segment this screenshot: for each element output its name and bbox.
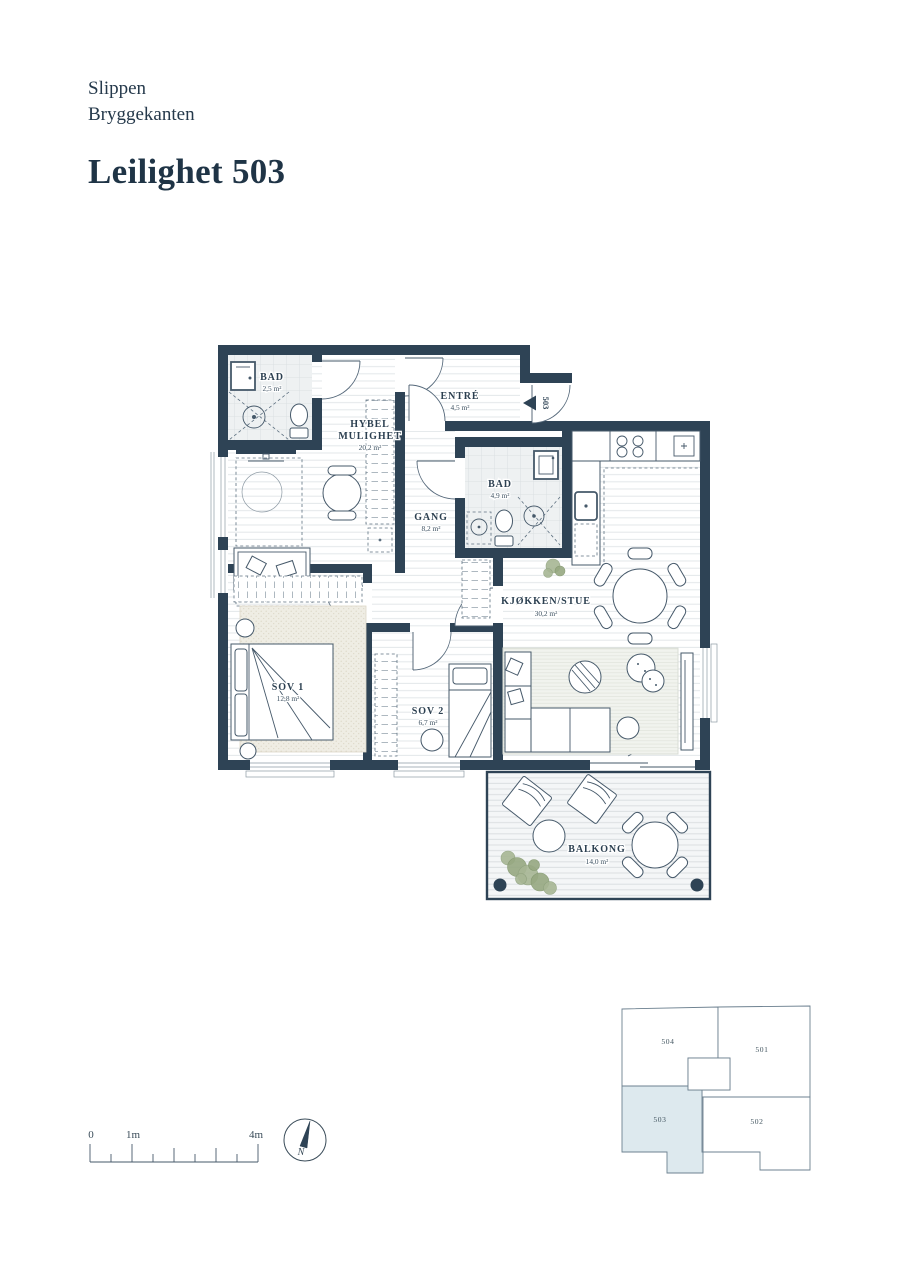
key-plan-unit-503-highlighted bbox=[622, 1086, 703, 1173]
room-area-balkong: 14,0 m² bbox=[586, 857, 610, 866]
brochure-page: Slippen Bryggekanten Leilighet 503 bbox=[0, 0, 905, 1280]
room-label-balkong: BALKONG bbox=[568, 844, 625, 855]
key-plan-label-504: 504 bbox=[661, 1037, 674, 1046]
window bbox=[700, 644, 717, 722]
compass: N bbox=[284, 1119, 326, 1161]
tv-bench bbox=[681, 653, 693, 750]
room-label-bad1: BAD bbox=[260, 372, 284, 383]
entry-arrow-icon bbox=[523, 396, 536, 411]
key-plan: 504 501 503 502 bbox=[622, 1006, 810, 1173]
nightstand bbox=[236, 619, 254, 637]
entry-unit-marker: 503 bbox=[541, 397, 551, 410]
room-area-bad1: 2,5 m² bbox=[262, 384, 282, 393]
key-plan-label-502: 502 bbox=[750, 1117, 763, 1126]
room-label-bad2: BAD bbox=[488, 479, 512, 490]
toilet bbox=[290, 404, 308, 438]
floorplan-drawing: BALKONG 14,0 m² bbox=[0, 0, 905, 1280]
compass-north-label: N bbox=[297, 1147, 306, 1158]
room-area-sov1: 12,8 m² bbox=[277, 694, 301, 703]
balcony-side-table bbox=[533, 820, 565, 852]
entry-door: 503 bbox=[523, 385, 570, 423]
balcony-post bbox=[691, 879, 704, 892]
side-table bbox=[617, 717, 639, 739]
wardrobe bbox=[234, 576, 362, 602]
window bbox=[218, 550, 228, 593]
scale-label-4m: 4m bbox=[249, 1129, 264, 1141]
room-area-hybel: 20,2 m² bbox=[359, 443, 383, 452]
key-plan-unit-502 bbox=[703, 1097, 810, 1170]
scale-bar: 0 1m 4m bbox=[88, 1129, 263, 1162]
balcony-post bbox=[494, 879, 507, 892]
single-bed bbox=[449, 664, 491, 757]
scale-label-0: 0 bbox=[88, 1129, 94, 1141]
room-area-bad2: 4,9 m² bbox=[490, 491, 510, 500]
balcony: BALKONG 14,0 m² bbox=[487, 772, 710, 899]
room-label-sov2: SOV 2 bbox=[412, 706, 444, 717]
wardrobe bbox=[375, 654, 397, 756]
window bbox=[246, 760, 334, 777]
window bbox=[394, 760, 464, 777]
room-label-sov1: SOV 1 bbox=[272, 682, 304, 693]
room-label-stue: KJØKKEN/STUE bbox=[501, 596, 591, 607]
window bbox=[218, 457, 228, 537]
room-area-sov2: 6,7 m² bbox=[418, 718, 438, 727]
scale-label-1m: 1m bbox=[126, 1129, 141, 1141]
washing-machine bbox=[534, 451, 558, 479]
nightstand bbox=[240, 743, 256, 759]
stool bbox=[421, 729, 443, 751]
room-area-entre: 4,5 m² bbox=[450, 403, 470, 412]
key-plan-label-503: 503 bbox=[653, 1115, 666, 1124]
key-plan-label-501: 501 bbox=[755, 1045, 768, 1054]
gang-wardrobe bbox=[462, 560, 490, 618]
room-label-entre: ENTRÉ bbox=[441, 390, 480, 402]
room-area-stue: 30,2 m² bbox=[535, 609, 559, 618]
room-area-gang: 8,2 m² bbox=[421, 524, 441, 533]
toilet bbox=[495, 510, 513, 546]
coffee-table bbox=[569, 661, 601, 693]
sink bbox=[231, 362, 255, 390]
room-label-gang: GANG bbox=[414, 512, 448, 523]
room-label-hybel-2: MULIGHET bbox=[338, 431, 401, 442]
room-label-hybel-1: HYBEL bbox=[350, 419, 390, 430]
key-plan-core bbox=[688, 1058, 730, 1090]
